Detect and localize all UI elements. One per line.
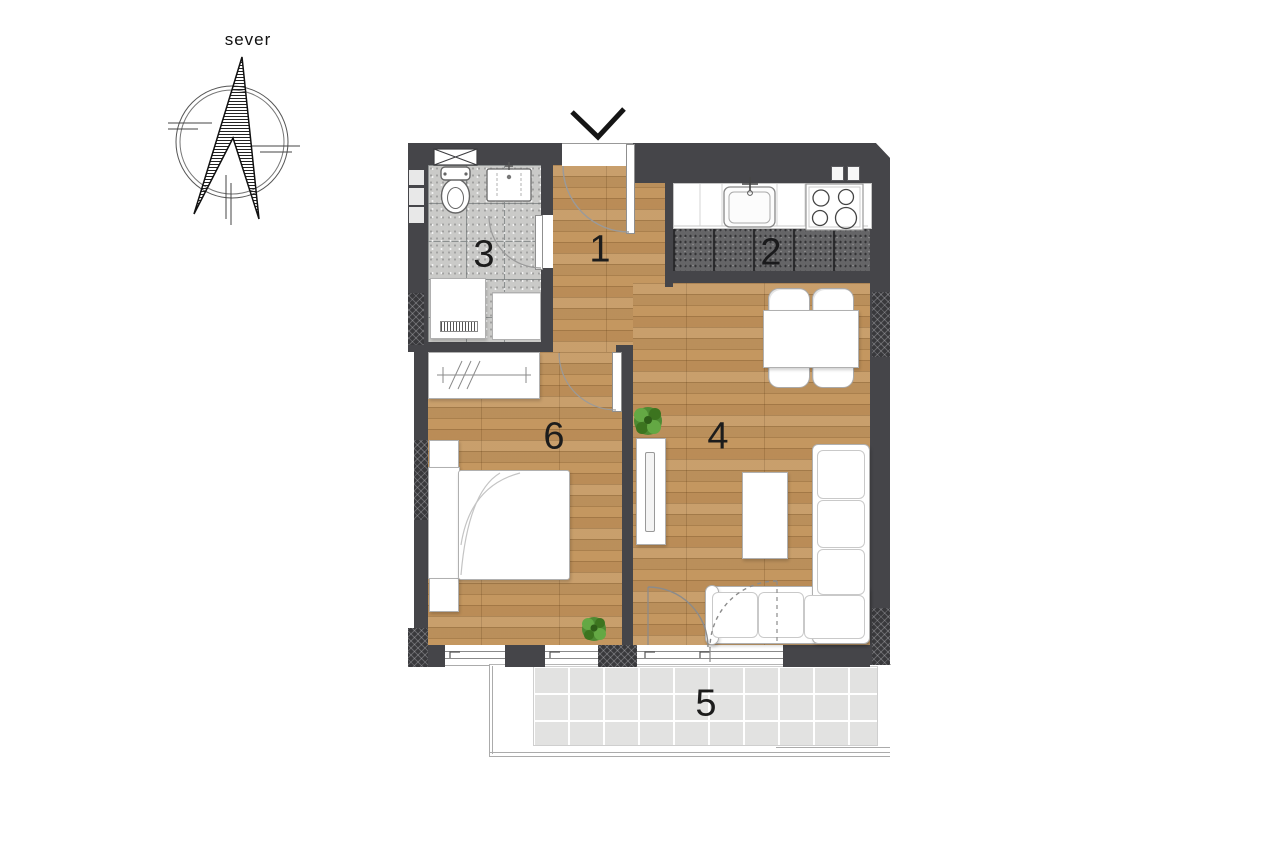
wall xyxy=(541,268,553,352)
wall-pier-hatch xyxy=(598,645,637,667)
wall xyxy=(408,342,548,352)
balcony-edge-line xyxy=(489,752,890,753)
wall-pier-hatch xyxy=(408,628,428,667)
balcony-door-window xyxy=(637,647,783,664)
wall xyxy=(870,165,890,665)
nightstand xyxy=(429,440,459,469)
room-label-kitchen: 2 xyxy=(760,232,781,275)
wall xyxy=(408,143,562,165)
sofa-cushion xyxy=(804,595,865,639)
wardrobe xyxy=(428,352,540,399)
bed-headboard xyxy=(428,467,460,579)
sofa-cushion xyxy=(817,500,865,548)
sofa-cushion xyxy=(758,592,804,638)
installation-shaft xyxy=(409,188,424,205)
room-label-balcony: 5 xyxy=(695,683,716,726)
partition-wall xyxy=(622,345,633,648)
wall-insulation-hatch xyxy=(872,292,890,357)
bedroom-door-leaf xyxy=(612,352,622,412)
bathroom-cabinet xyxy=(492,292,541,340)
bathroom-door-leaf xyxy=(535,215,543,270)
sofa-cushion xyxy=(817,450,865,499)
wall xyxy=(541,143,553,215)
balcony-edge-line xyxy=(489,756,890,757)
room-label-living-room: 4 xyxy=(707,416,728,459)
chevron-down-icon xyxy=(572,109,624,137)
vent-shaft xyxy=(847,166,860,181)
washing-machine-vent xyxy=(440,321,478,332)
wall-insulation-hatch xyxy=(408,293,424,345)
wall-pier xyxy=(505,645,545,667)
floor-plan: sever xyxy=(0,0,1280,853)
installation-shaft xyxy=(409,170,424,185)
compass-icon xyxy=(160,25,310,225)
sofa-cushion xyxy=(712,592,758,638)
bed xyxy=(458,470,570,580)
wall-insulation-hatch xyxy=(872,608,890,665)
dining-table xyxy=(763,310,859,368)
wall-pier xyxy=(428,645,445,667)
nightstand xyxy=(429,578,459,612)
tv xyxy=(645,452,655,532)
kitchen-counter xyxy=(673,183,872,229)
bedroom-window xyxy=(445,647,505,664)
entry-door-leaf xyxy=(626,144,635,234)
room-label-bathroom: 3 xyxy=(473,234,494,277)
wall-insulation-hatch xyxy=(414,440,428,520)
entry-doorway xyxy=(562,143,633,166)
vent-shaft xyxy=(831,166,844,181)
balcony-edge-line xyxy=(776,747,890,748)
compass-north-label: sever xyxy=(198,30,298,50)
bedroom-window xyxy=(545,647,598,664)
room-label-hallway: 1 xyxy=(589,229,610,272)
wall xyxy=(783,645,870,667)
room-label-bedroom: 6 xyxy=(543,416,564,459)
balcony-railing-line xyxy=(492,666,493,754)
coffee-table xyxy=(742,472,788,559)
installation-shaft xyxy=(409,207,424,223)
sofa-cushion xyxy=(817,549,865,595)
